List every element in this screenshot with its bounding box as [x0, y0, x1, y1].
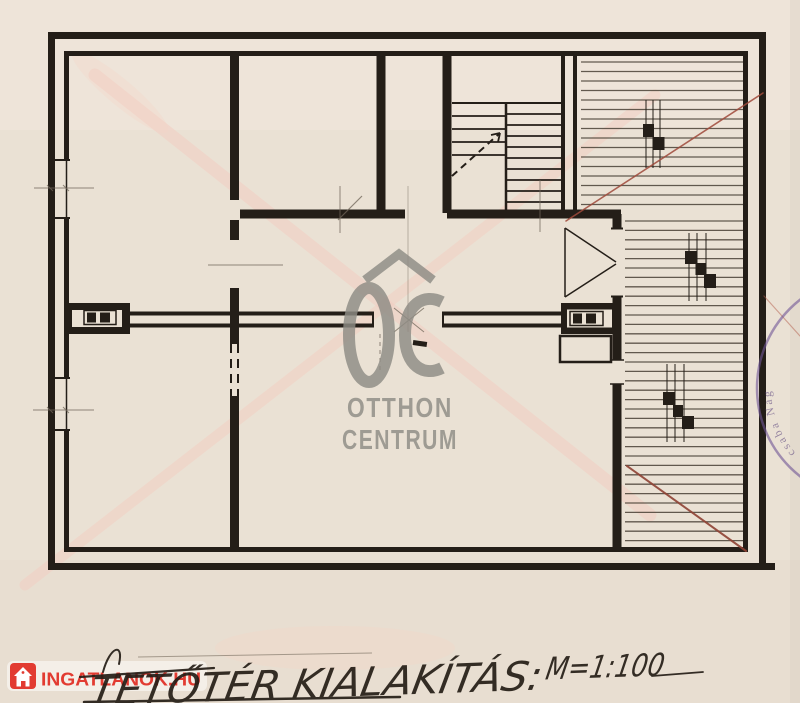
watermark-word-1: OTTHON — [347, 392, 453, 423]
watermark-word-2: CENTRUM — [342, 424, 458, 455]
handwritten-scale: M=1:100 — [543, 647, 667, 687]
house-icon — [10, 663, 36, 689]
floor-plan-drawing: csaba Nag OTTHON CENTRUM INGATLANOK.HU T… — [0, 0, 800, 703]
scanned-floor-plan-page: csaba Nag OTTHON CENTRUM INGATLANOK.HU T… — [0, 0, 800, 703]
